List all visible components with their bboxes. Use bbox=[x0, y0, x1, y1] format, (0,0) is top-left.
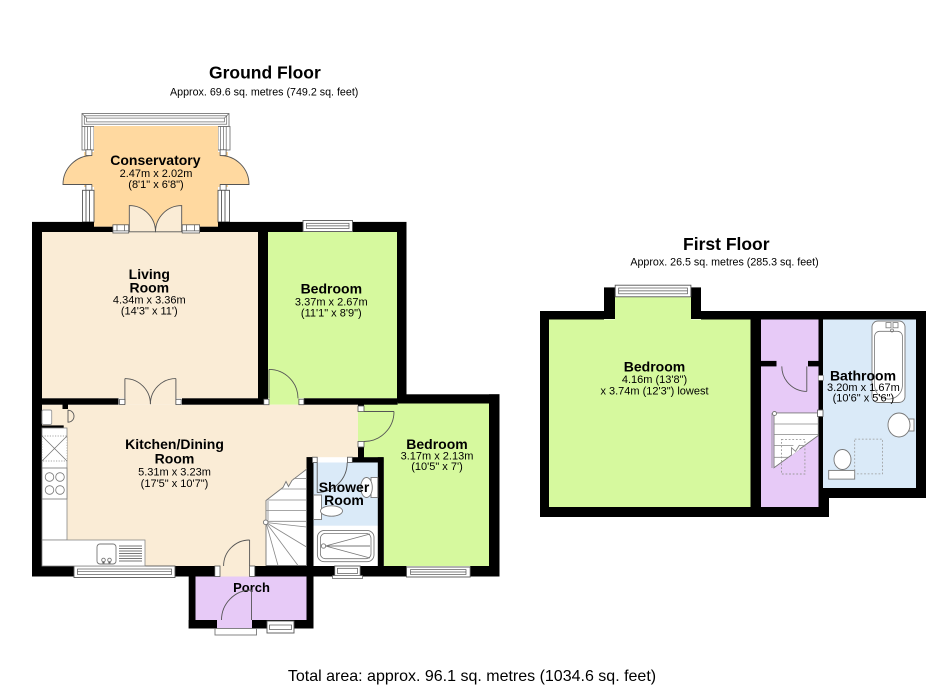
svg-text:(8'1" x 6'8"): (8'1" x 6'8") bbox=[128, 179, 183, 191]
svg-text:(10'6" x 5'6"): (10'6" x 5'6") bbox=[833, 393, 895, 405]
svg-text:Bedroom: Bedroom bbox=[301, 281, 362, 297]
svg-text:4.34m x 3.36m: 4.34m x 3.36m bbox=[113, 294, 186, 306]
svg-text:Room: Room bbox=[324, 492, 364, 508]
svg-text:4.16m (13'8"): 4.16m (13'8") bbox=[622, 374, 687, 386]
svg-text:Approx. 69.6 sq. metres (749.2: Approx. 69.6 sq. metres (749.2 sq. feet) bbox=[170, 87, 358, 99]
svg-text:Total area: approx. 96.1 sq. m: Total area: approx. 96.1 sq. metres (103… bbox=[288, 668, 656, 685]
svg-text:Bathroom: Bathroom bbox=[830, 368, 896, 384]
svg-text:(10'5" x 7'): (10'5" x 7') bbox=[411, 461, 463, 473]
svg-text:Bedroom: Bedroom bbox=[624, 359, 685, 375]
svg-text:5.31m x 3.23m: 5.31m x 3.23m bbox=[138, 466, 211, 478]
svg-text:Approx. 26.5 sq. metres (285.3: Approx. 26.5 sq. metres (285.3 sq. feet) bbox=[630, 256, 818, 268]
svg-text:x 3.74m (12'3") lowest: x 3.74m (12'3") lowest bbox=[600, 386, 708, 398]
svg-text:Room: Room bbox=[155, 451, 195, 467]
svg-text:First Floor: First Floor bbox=[683, 234, 770, 254]
svg-text:(11'1" x 8'9"): (11'1" x 8'9") bbox=[301, 308, 362, 320]
svg-text:(14'3" x 11'): (14'3" x 11') bbox=[121, 306, 178, 318]
svg-text:Room: Room bbox=[129, 279, 169, 295]
svg-text:Ground Floor: Ground Floor bbox=[209, 63, 321, 83]
svg-text:Conservatory: Conservatory bbox=[110, 152, 200, 168]
svg-text:(17'5" x 10'7"): (17'5" x 10'7") bbox=[141, 478, 209, 490]
